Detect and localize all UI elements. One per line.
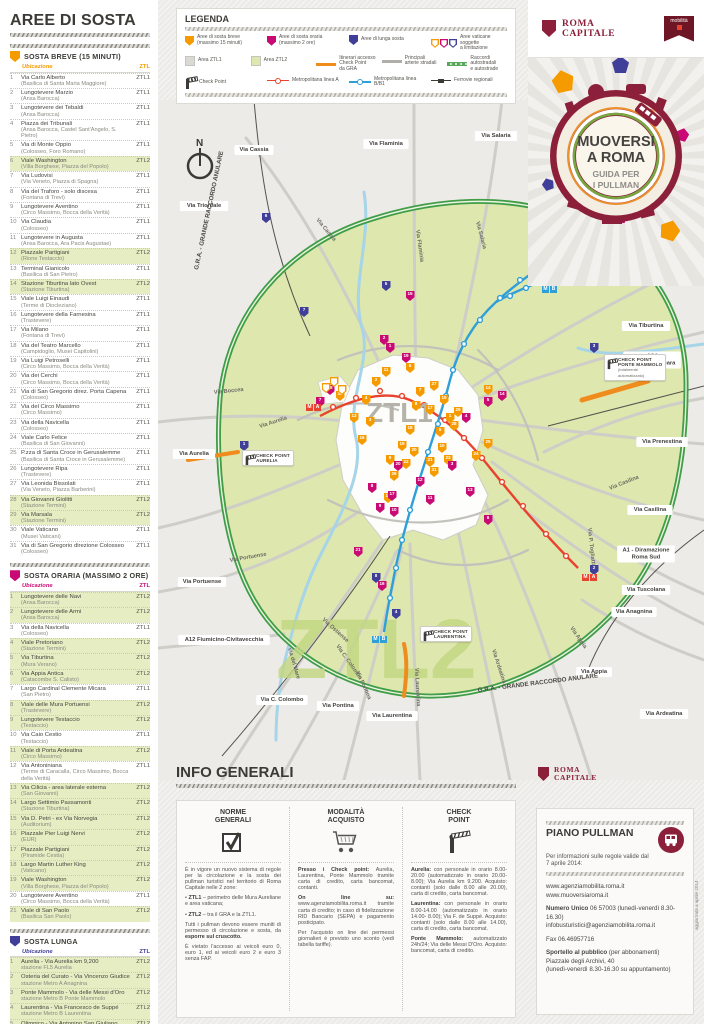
short-stop-marker: 20 [410, 447, 419, 457]
parking-row: 30Viale Vaticano(Musei Vaticani)ZTL1 [10, 525, 150, 540]
parking-row: 9Lungotevere Aventino(Circo Massimo, Boc… [10, 202, 150, 217]
metro-terminal-logo: MA [306, 404, 321, 411]
access-route-icon [316, 63, 336, 66]
shield-breve-icon [185, 36, 194, 46]
parking-row: 21Viale di San Paolo(Basilica San Paolo)… [10, 906, 150, 921]
section-title: SOSTA BREVE (15 MINUTI) [24, 52, 121, 61]
vatican-shields-icon [431, 39, 457, 48]
sidebar-section: SOSTA BREVE (15 MINUTI)UbicazioneZTL1Via… [10, 44, 150, 556]
short-stop-marker: 2 [372, 377, 381, 387]
long-stop-marker: 4 [392, 609, 401, 619]
divider [546, 872, 684, 876]
long-stop-marker: 6 [262, 213, 271, 223]
ztl2-swatch-icon [251, 56, 261, 66]
hourly-stop-marker: 14 [498, 391, 507, 401]
legend-item: Area ZTL2 [251, 56, 311, 66]
shield-lunga-icon [349, 35, 358, 45]
legend-item: Check Point [185, 77, 261, 89]
checkpoint-callout: CHECK POINTPONTE MAMMOLO(totalmenteautom… [604, 354, 666, 381]
deco-pentagon [612, 58, 629, 73]
brand-band: ROMACAPITALE mobilità [528, 0, 704, 58]
parking-row: 4Viale Pretoriano(Stazione Termini)ZTL2 [10, 638, 150, 653]
metro-terminal-logo: MB [542, 286, 557, 293]
info-generali-header: INFO GENERALI [176, 764, 516, 790]
section-title: SOSTA LUNGA [24, 937, 78, 946]
short-stop-marker: 5 [436, 427, 445, 437]
parking-row: 2Lungotevere delle Armi(Ansa Barocca)ZTL… [10, 607, 150, 622]
legend-title: LEGENDA [185, 14, 507, 24]
parking-row: 23Via della Navicella(Colosseo)ZTL1 [10, 418, 150, 433]
long-stop-marker: 5 [382, 281, 391, 291]
parking-row: 31Via di San Gregorio direzione Colosseo… [10, 541, 150, 556]
metro-a-icon [267, 77, 289, 85]
info-paragraph: Ponte Mammolo: automatizzato 24h/24; Via… [411, 936, 507, 954]
metro-terminal-logo: MB [372, 636, 387, 643]
parking-row: 21Via di San Gregorio direz. Porta Capen… [10, 387, 150, 402]
legend-item: Aree di lunga sosta [349, 35, 425, 45]
parking-row: 12Via Antoniniana(Terme di Caracalla, Ci… [10, 761, 150, 783]
parking-row: 10Via Claudia(Colosseo)ZTL1 [10, 217, 150, 232]
info-paragraph: • ZTL1 – perimetro delle Mura Aureliane … [185, 895, 281, 907]
sidebar-section: SOSTA ORARIA (MASSIMO 2 ORE)UbicazioneZT… [10, 563, 150, 921]
checkpoint-barrier-icon [423, 631, 432, 641]
parking-row: 13Via Cilicia - area laterale esterna(Sa… [10, 783, 150, 798]
hourly-stop-marker: 3 [448, 461, 457, 471]
divider [185, 27, 507, 31]
short-stop-marker: 28 [450, 421, 459, 431]
muoversi-url[interactable]: www.muoversiaroma.it [546, 892, 684, 901]
roma-capitale-logo-small: ROMACAPITALE [538, 766, 597, 782]
short-stop-marker: 29 [454, 407, 463, 417]
legend-item: Metropolitana linea B/B1 [349, 77, 425, 88]
ztl1-swatch-icon [185, 56, 195, 66]
parking-row: 2Lungotevere Marzio(Ansa Barocca)ZTL1 [10, 88, 150, 103]
section-shield-icon [10, 936, 20, 947]
short-stop-marker: 8 [412, 401, 421, 411]
checkbox-icon [221, 830, 245, 854]
short-stop-marker: 17 [426, 405, 435, 415]
svg-text:MUOVERSI: MUOVERSI [577, 134, 654, 150]
divider [176, 784, 516, 788]
checkpoint-callout: CHECK POINTLAURENTINA [420, 626, 472, 642]
hourly-stop-marker: 16 [378, 581, 387, 591]
parking-row: 7Largo Cardinal Clemente Micara(San Piet… [10, 684, 150, 699]
info-column-norme: NORMEGENERALIÈ in vigore un nuovo sistem… [177, 807, 289, 1011]
legend-item: Metropolitana linea A [267, 77, 343, 85]
parking-row: 15Viale Luigi Einaudi(Terme di Dioclezia… [10, 294, 150, 309]
hourly-stop-marker: 13 [466, 487, 475, 497]
legend: LEGENDA Aree di sosta breve(massimo 15 m… [176, 8, 516, 104]
long-stop-marker: 3 [590, 343, 599, 353]
parking-row: 4Laurentina - Via Francesco de Suppéstaz… [10, 1003, 150, 1018]
bus-icon [658, 827, 684, 853]
page-title: AREE DI SOSTA [10, 12, 150, 30]
short-stop-marker: 15 [440, 395, 449, 405]
parking-row: 20Lungotevere Aventino(Circo Massimo, Bo… [10, 891, 150, 906]
section-title: SOSTA ORARIA (MASSIMO 2 ORE) [24, 571, 148, 580]
sidebar: AREE DI SOSTA SOSTA BREVE (15 MINUTI)Ubi… [0, 0, 158, 1024]
hourly-stop-marker: 5 [484, 397, 493, 407]
info-paragraph: Tutti i pullman devono essere muniti di … [185, 922, 281, 940]
emblem-panel: MUOVERSI A ROMA GUIDA PER I PULLMAN [528, 58, 704, 286]
parking-row: 17Via Milano(Fontana di Trevi)ZTL1 [10, 325, 150, 340]
barrier-icon [445, 829, 473, 855]
motorway-icon [447, 62, 467, 66]
hourly-stop-marker: 11 [426, 495, 435, 505]
metro-terminal-logo: MA [582, 574, 597, 581]
sidebar-section: SOSTA LUNGAUbicazioneZTL1Aurelia - Via A… [10, 929, 150, 1024]
checkpoint-barrier-icon [185, 77, 196, 89]
parking-row: 20Via dei Cerchi(Circo Massimo, Bocca de… [10, 371, 150, 386]
muoversi-a-roma-emblem: MUOVERSI A ROMA GUIDA PER I PULLMAN [540, 80, 692, 232]
main-road-icon [382, 60, 402, 63]
svg-text:A ROMA: A ROMA [587, 150, 646, 166]
legend-item: Raccordi autostradalie autostrade [447, 56, 507, 73]
short-stop-marker: 11 [382, 367, 391, 377]
sportello-address: Piazzale degli Archivi, 40 [546, 958, 684, 967]
short-stop-marker: 31 [430, 467, 439, 477]
divider [10, 33, 150, 37]
info-generali-card: NORMEGENERALIÈ in vigore un nuovo sistem… [176, 800, 516, 1018]
parking-row: 2Osteria del Curato - Via Vincenzo Giudi… [10, 972, 150, 987]
hourly-stop-marker: 20 [394, 461, 403, 471]
short-stop-marker: 6 [406, 363, 415, 373]
hourly-stop-marker: 9 [376, 503, 385, 513]
parking-row: 6Viale Washington(Villa Borghese, Piazza… [10, 156, 150, 171]
parking-row: 3Via della Navicella(Colosseo)ZTL1 [10, 623, 150, 638]
short-stop-marker: 16 [358, 435, 367, 445]
shield-oraria-icon [267, 36, 276, 46]
numero-unico: Numero Unico 06 57003 (lunedì-venerdì 8.… [546, 905, 684, 922]
roma-capitale-shield-icon [538, 767, 549, 781]
parking-row: 19Viale Washington(Villa Borghese, Piazz… [10, 875, 150, 890]
sportello: Sportello al pubblico (per abbonamenti) [546, 949, 684, 958]
parking-row: 24Viale Carlo Felice(Basilica di San Gio… [10, 433, 150, 448]
legend-item: Aree vaticane soggettea limitazione [431, 35, 507, 52]
parking-row: 1Via Carlo Alberto(Basilica di Santa Mar… [10, 73, 150, 88]
parking-row: 16Lungotevere della Farnesina(Trastevere… [10, 310, 150, 325]
parking-row: 26Lungotevere Ripa(Trastevere)ZTL1 [10, 464, 150, 479]
short-stop-marker: 25 [484, 439, 493, 449]
hourly-stop-marker: 1 [386, 343, 395, 353]
svg-text:I PULLMAN: I PULLMAN [593, 180, 639, 190]
roma-capitale-logo: ROMACAPITALE [562, 19, 615, 39]
short-stop-marker: 4 [362, 395, 371, 405]
checkpoint-callout: CHECK POINTAURELIA [242, 450, 294, 466]
short-stop-marker: 10 [438, 443, 447, 453]
short-stop-marker: 27 [430, 381, 439, 391]
sportello-hours: (lunedì-venerdì 8.30-16.30 su appuntamen… [546, 966, 684, 975]
short-stop-marker: 13 [350, 413, 359, 423]
hourly-stop-marker: 4 [462, 413, 471, 423]
info-paragraph: Aurelia: con personale in orario 8.00-20… [411, 867, 507, 897]
parking-row: 18Via del Teatro Marcello(Campidoglio, M… [10, 341, 150, 356]
parking-row: 29Via Marsala(Stazione Termini)ZTL2 [10, 510, 150, 525]
parking-row: 6Via Appia Antica(Catacombe S. Calisto)Z… [10, 669, 150, 684]
parking-row: 1Lungotevere delle Navi(Ansa Barocca)ZTL… [10, 592, 150, 607]
info-paragraph: È vietato l'accesso ai veicoli euro 0, e… [185, 944, 281, 962]
info-paragraph: Laurentina: con personale in orario 8.00… [411, 901, 507, 931]
mobilita-ribbon-logo: mobilità [664, 16, 694, 42]
parking-row: 11Viale di Porta Ardeatina(Circo Massimo… [10, 746, 150, 761]
hourly-stop-marker: 21 [354, 547, 363, 557]
parking-row: 8Viale delle Mura Portuensi(Trastevere)Z… [10, 700, 150, 715]
parking-row: 14Stazione Tiburtina lato Ovest(Stazione… [10, 279, 150, 294]
info-email[interactable]: infobusturistici@agenziamobilita.roma.it [546, 922, 684, 931]
parking-row: 28Via Giovanni Giolitti(Stazione Termini… [10, 495, 150, 510]
parking-row: 5Olimpico - Via Antonino San Giulianolin… [10, 1019, 150, 1024]
hourly-stop-marker: 8 [368, 483, 377, 493]
short-stop-marker: 24 [472, 451, 481, 461]
legend-item: Aree di sosta breve(massimo 15 minuti) [185, 35, 261, 46]
hourly-stop-marker: 15 [406, 291, 415, 301]
short-stop-marker: 9 [386, 455, 395, 465]
parking-row: 16Piazzale Pier Luigi Nervi(EUR)ZTL2 [10, 829, 150, 844]
roma-capitale-shield-icon [542, 20, 556, 37]
short-stop-marker: 7 [416, 387, 425, 397]
divider [185, 93, 507, 97]
info-generali-title: INFO GENERALI [176, 764, 516, 781]
poster: ZTL2 [0, 0, 704, 1024]
piano-intro: Per informazioni sulle regole valide dal… [546, 854, 652, 868]
agency-url[interactable]: www.agenziamobilita.roma.it [546, 883, 684, 892]
parking-row: 18Largo Martin Luther King(Vaticano)ZTL2 [10, 860, 150, 875]
short-stop-marker: 26 [390, 471, 399, 481]
parking-row: 1Aurelia - Via Aurelia km 9,200stazione … [10, 957, 150, 972]
parking-sections: SOSTA BREVE (15 MINUTI)UbicazioneZTL1Via… [10, 44, 150, 1024]
divider [546, 821, 684, 825]
revision-note: aggiornata a aprile 2014 [694, 840, 704, 970]
piano-pullman-title: PIANO PULLMAN [546, 827, 654, 839]
parking-row: 10Via Caio Cestio(Testaccio)ZTL1 [10, 730, 150, 745]
piano-pullman-card: PIANO PULLMAN Per informazioni sulle reg… [536, 808, 694, 1015]
hourly-stop-marker: 6 [484, 515, 493, 525]
legend-item: Aree di sosta oraria(massimo 2 ore) [267, 35, 343, 46]
checkpoint-barrier-icon [245, 455, 254, 465]
parking-row: 4Piazza dei Tribunali(Ansa Barocca, Cast… [10, 119, 150, 141]
parking-row: 17Piazzale Partigiani(Piramide Cestia)ZT… [10, 845, 150, 860]
metro-b-icon [349, 78, 371, 86]
regional-rail-icon [431, 77, 451, 85]
short-stop-marker: 18 [406, 425, 415, 435]
short-stop-marker: 3 [366, 417, 375, 427]
parking-row: 7Via Ludovisi(Via Veneto, Piazza di Spag… [10, 171, 150, 186]
legend-item: Ferrovie regionali [431, 77, 507, 85]
mobilita-square-icon [677, 25, 682, 30]
parking-row: 5Via di Monte Oppio(Colosseo, Foro Roman… [10, 140, 150, 155]
cart-icon [332, 830, 360, 854]
short-stop-marker: 21 [426, 457, 435, 467]
short-stop-marker: 19 [398, 441, 407, 451]
parking-row: 9Lungotevere Testaccio(Testaccio)ZTL2 [10, 715, 150, 730]
short-stop-marker: 14 [484, 385, 493, 395]
legend-rows: Aree di sosta breve(massimo 15 minuti)Ar… [185, 35, 507, 89]
fax-number: Fax 06.46957716 [546, 936, 684, 945]
info-column-checkpoint: CHECKPOINTAurelia: con personale in orar… [402, 807, 515, 1011]
svg-text:GUIDA PER: GUIDA PER [593, 169, 640, 179]
parking-row: 8Via del Traforo - solo discesa(Fontana … [10, 187, 150, 202]
hourly-stop-marker: 10 [390, 507, 399, 517]
info-paragraph: Presso i Check point: Aurelia, Laurentin… [298, 867, 394, 891]
parking-row: 3Lungotevere dei Tebaldi(Ansa Barocca)ZT… [10, 103, 150, 118]
hourly-stop-marker: 19 [402, 353, 411, 363]
parking-row: 14Largo Settimio Passamonti(Stazione Tib… [10, 798, 150, 813]
parking-row: 22Via del Circo Massimo(Circo Massimo)ZT… [10, 402, 150, 417]
section-shield-icon [10, 51, 20, 62]
info-paragraph: È in vigore un nuovo sistema di regole p… [185, 867, 281, 891]
parking-row: 19Via Luigi Petroselli(Circo Massimo, Bo… [10, 356, 150, 371]
legend-item: Area ZTL1 [185, 56, 245, 66]
info-column-acquisto: MODALITÀACQUISTOPresso i Check point: Au… [289, 807, 402, 1011]
parking-row: 3Ponte Mammolo - Via delle Messi d'Orost… [10, 988, 150, 1003]
section-shield-icon [10, 570, 20, 581]
hourly-stop-marker: 12 [416, 477, 425, 487]
info-paragraph: • ZTL2 – tra il GRA e la ZTL1. [185, 912, 281, 918]
checkpoint-barrier-icon [607, 359, 616, 369]
parking-row: 27Via Leonida Bissolati(Via Veneto, Piaz… [10, 479, 150, 494]
short-stop-marker: 22 [402, 459, 411, 469]
parking-row: 25P.zza di Santa Croce in Gerusalemme(Ba… [10, 448, 150, 463]
info-paragraph: Per l'acquisto on line dei permessi gior… [298, 930, 394, 948]
parking-row: 13Terminal Gianicolo(Basilica di San Pie… [10, 264, 150, 279]
legend-item: Itinerari accessoCheck Pointda GRA [316, 56, 376, 73]
long-stop-marker: 7 [300, 307, 309, 317]
parking-row: 5Via Tiburtina(Mura Verano)ZTL2 [10, 653, 150, 668]
parking-row: 12Piazzale Partigiani(Rione Testaccio)ZT… [10, 248, 150, 263]
info-paragraph: On line su: www.agenziamobilita.roma.it … [298, 895, 394, 925]
parking-row: 11Lungotevere in Augusta(Ansa Barocca, A… [10, 233, 150, 248]
parking-row: 15Via D. Petri - ex Via Norvegia(Auditor… [10, 814, 150, 829]
legend-item: Principaliarterie stradali [382, 56, 442, 67]
